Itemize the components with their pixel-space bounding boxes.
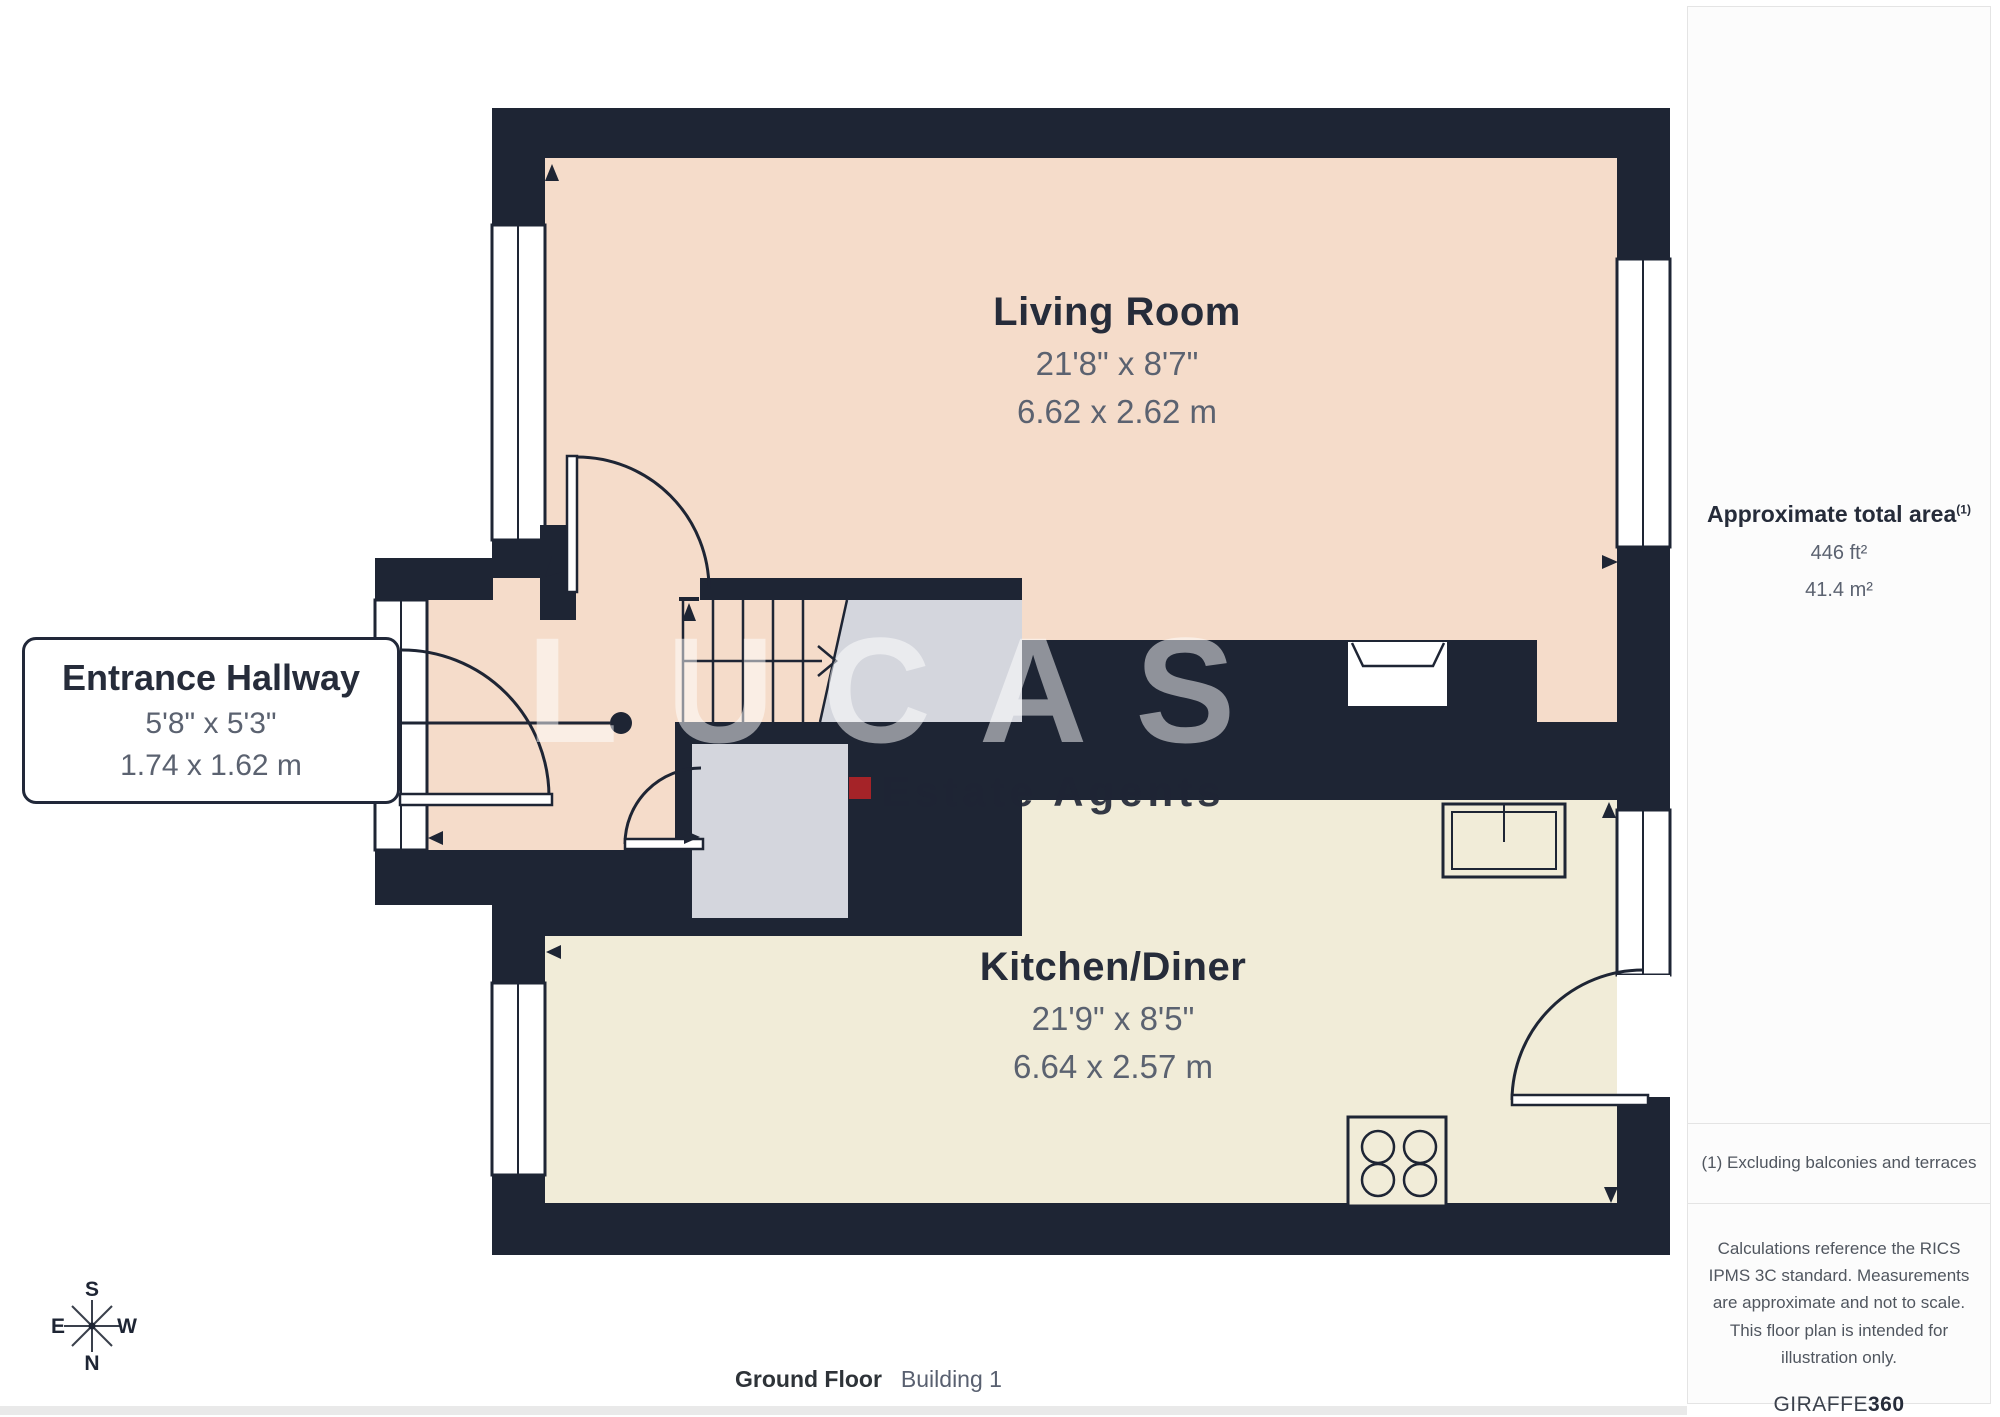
watermark-red-square [849,777,871,799]
window-living-left [492,225,545,540]
entrance-hallway-name: Entrance Hallway [25,657,397,699]
watermark-brand-text: LUCAS [527,606,1284,774]
hob [1348,1117,1446,1206]
window-kitchen-left [492,983,545,1175]
entrance-hallway-label-box: Entrance Hallway 5'8" x 5'3" 1.74 x 1.62… [22,637,400,804]
info-sidebar: Approximate total area(1) 446 ft² 41.4 m… [1687,6,1991,1404]
compass-west-label: W [117,1315,137,1338]
sink-unit [1443,804,1565,877]
total-area-metric: 41.4 m² [1688,579,1990,602]
floor-name: Ground Floor [735,1366,882,1393]
total-area-block: Approximate total area(1) 446 ft² 41.4 m… [1688,501,1990,602]
total-area-title: Approximate total area(1) [1688,501,1990,528]
footnote-text: (1) Excluding balconies and terraces [1702,1153,1977,1173]
window-kitchen-right [1617,810,1670,975]
entrance-hallway-imperial: 5'8" x 5'3" [25,707,397,741]
bottom-strip [0,1406,1687,1415]
disclaimer-block: Calculations reference the RICS IPMS 3C … [1688,1235,1990,1417]
disclaimer-text: Calculations reference the RICS IPMS 3C … [1707,1235,1971,1371]
compass: S N E W [51,1278,137,1375]
watermark-tagline-text: Estate Agents [882,768,1226,815]
giraffe360-logo: GIRAFFE360 [1688,1393,1990,1417]
compass-east-label: E [51,1315,65,1338]
window-living-right [1617,259,1670,547]
sidebar-divider-2 [1688,1203,1990,1204]
building-name: Building 1 [901,1366,1002,1393]
entrance-hallway-metric: 1.74 x 1.62 m [25,749,397,783]
footnote-ref: (1) [1956,502,1971,516]
total-area-imperial: 446 ft² [1688,542,1990,565]
compass-north-label: N [84,1352,99,1375]
footnote-block: (1) Excluding balconies and terraces [1688,1123,1990,1203]
footer-caption: Ground Floor Building 1 [735,1366,1002,1393]
fireplace [1347,641,1448,707]
floor-plan-page: LUCAS Estate Agents S N E W Living Room … [0,0,2000,1415]
compass-south-label: S [85,1278,99,1301]
